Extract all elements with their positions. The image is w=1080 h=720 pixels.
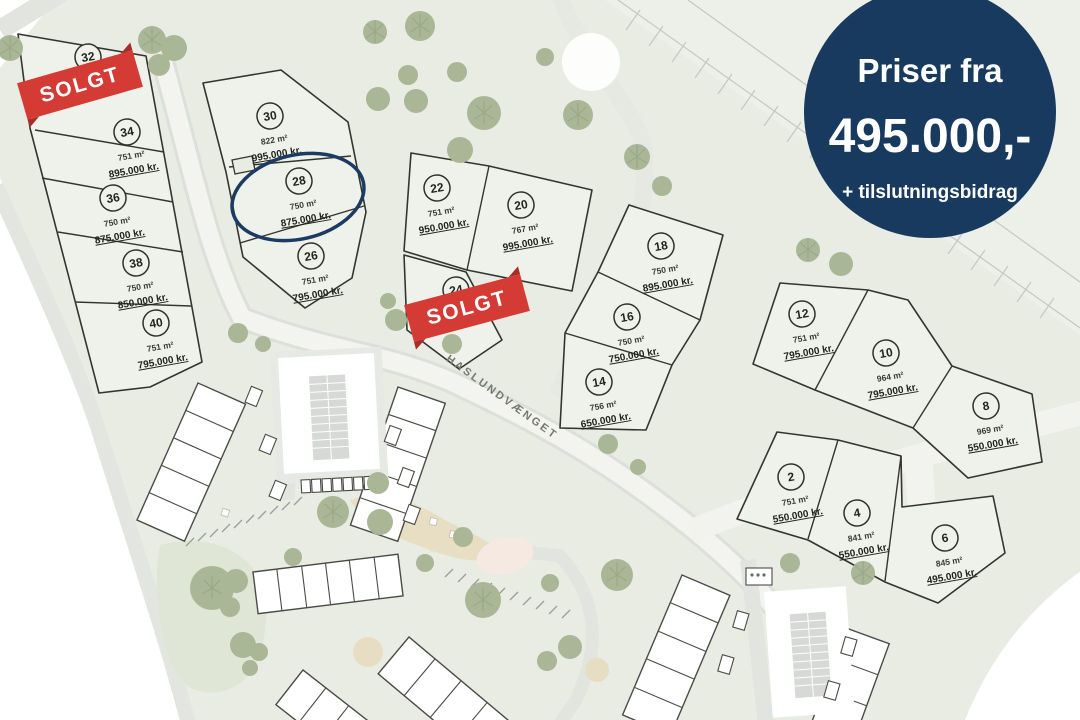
tree-icon [796,238,820,262]
tree-icon [404,89,428,113]
tree-icon [652,176,672,196]
site-plan-page: HASLUNDVÆNGET 32 34 751 m² 895.000 kr. 3… [0,0,1080,720]
plot-number: 10 [878,345,894,361]
plot-number: 40 [148,315,164,331]
tree-icon [624,144,650,170]
tree-icon [563,100,593,130]
badge-title: Priser fra [858,52,1004,89]
tree-icon [366,87,390,111]
tree-icon [398,65,418,85]
tree-icon [363,20,387,44]
tree-icon [242,660,258,676]
tree-icon [541,574,559,592]
badge-price: 495.000,- [829,110,1032,163]
sand-patch [585,658,609,682]
tree-icon [284,548,302,566]
tree-icon [224,569,248,593]
plot-number: 30 [262,108,278,124]
tree-icon [367,509,393,535]
plot-number: 36 [105,190,121,206]
plot-number: 18 [653,238,669,254]
tree-icon [558,635,582,659]
tree-icon [367,472,389,494]
site-plan-map: HASLUNDVÆNGET 32 34 751 m² 895.000 kr. 3… [0,0,1080,720]
plot-number: 12 [794,306,810,322]
tree-icon [601,559,633,591]
plot-number: 20 [513,197,529,213]
tree-icon [250,643,268,661]
badge-note: + tilslutningsbidrag [842,182,1018,203]
plot-number: 26 [303,248,319,264]
tree-icon [780,553,800,573]
tree-icon [598,434,618,454]
community-building [270,347,389,485]
tree-icon [851,561,875,585]
plot-number: 16 [619,309,635,325]
play-equipment [221,508,230,517]
plot-number: 22 [429,180,445,196]
play-equipment [429,517,437,525]
sand-patch [353,637,383,667]
pond [562,33,620,91]
plot-number: 38 [128,255,144,271]
tree-icon [447,137,473,163]
tree-icon [148,54,170,76]
tree-icon [220,597,240,617]
plot-number: 14 [591,374,607,390]
tree-icon [537,651,557,671]
tree-icon [385,309,407,331]
tree-icon [453,527,473,547]
tree-icon [465,582,501,618]
tree-icon [317,496,349,528]
tree-icon [829,252,853,276]
tree-icon [380,293,396,309]
tree-icon [442,334,462,354]
tree-icon [228,323,248,343]
plot-number: 34 [119,124,135,140]
tree-icon [416,554,434,572]
bin-shelter [746,568,772,585]
tree-icon [630,459,646,475]
tree-icon [255,336,271,352]
tree-icon [405,11,435,41]
tree-icon [467,96,501,130]
tree-icon [536,48,554,66]
plot-number: 28 [291,173,307,189]
tree-icon [447,62,467,82]
